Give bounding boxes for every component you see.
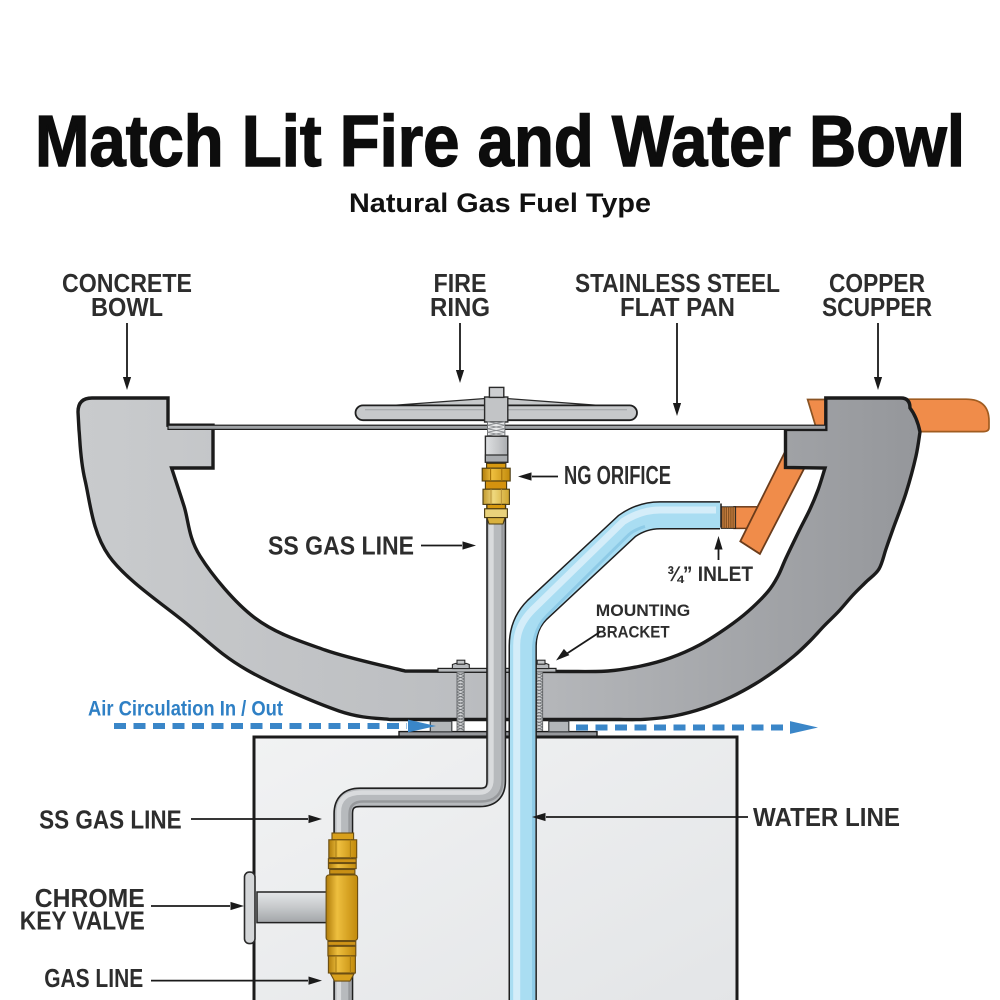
svg-text:BOWL: BOWL <box>91 292 163 322</box>
svg-text:SS GAS LINE: SS GAS LINE <box>39 805 182 835</box>
svg-text:GAS LINE: GAS LINE <box>44 963 143 993</box>
svg-text:Air Circulation In / Out: Air Circulation In / Out <box>88 698 283 721</box>
svg-text:SCUPPER: SCUPPER <box>822 292 932 322</box>
svg-text:FLAT PAN: FLAT PAN <box>620 292 735 322</box>
svg-text:Natural Gas Fuel Type: Natural Gas Fuel Type <box>349 188 651 218</box>
svg-text:NG ORIFICE: NG ORIFICE <box>564 460 671 490</box>
svg-text:Match Lit Fire and Water Bowl: Match Lit Fire and Water Bowl <box>35 102 965 182</box>
svg-text:SS GAS LINE: SS GAS LINE <box>268 531 414 561</box>
svg-text:RING: RING <box>430 292 490 322</box>
svg-text:WATER LINE: WATER LINE <box>753 802 900 832</box>
svg-text:MOUNTING: MOUNTING <box>596 601 691 620</box>
svg-text:¾” INLET: ¾” INLET <box>667 562 753 586</box>
svg-text:BRACKET: BRACKET <box>596 623 670 642</box>
svg-text:KEY VALVE: KEY VALVE <box>20 905 145 935</box>
